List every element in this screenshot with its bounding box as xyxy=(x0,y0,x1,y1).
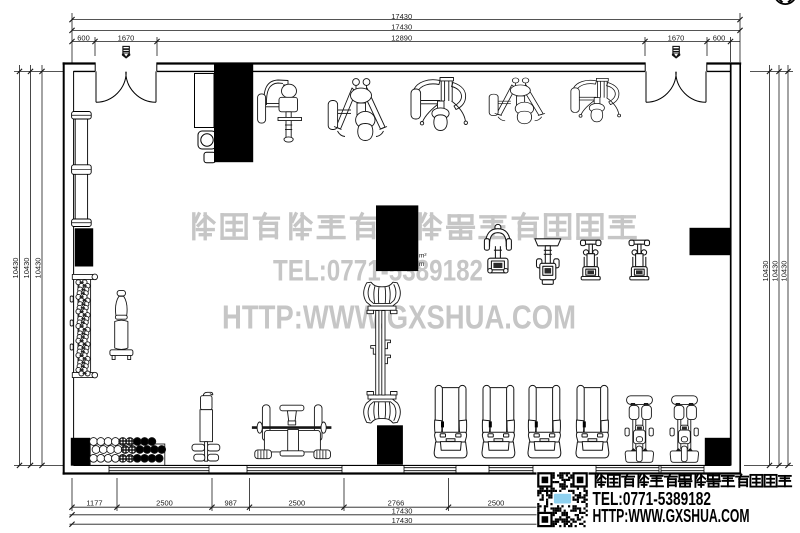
svg-text:10430: 10430 xyxy=(780,261,789,282)
svg-text:600: 600 xyxy=(713,34,726,43)
svg-text:12890: 12890 xyxy=(391,34,412,43)
svg-text:HTTP:WWW.GXSHUA.COM: HTTP:WWW.GXSHUA.COM xyxy=(593,506,750,526)
svg-text:2500: 2500 xyxy=(488,498,505,507)
svg-text:2500: 2500 xyxy=(156,498,173,507)
svg-text:10430: 10430 xyxy=(761,261,770,282)
svg-text:600: 600 xyxy=(77,34,90,43)
svg-text:10430: 10430 xyxy=(771,261,780,282)
svg-text:17430: 17430 xyxy=(392,516,413,525)
svg-text:10430: 10430 xyxy=(11,258,20,279)
svg-text:m²: m² xyxy=(419,253,427,260)
svg-text:1177: 1177 xyxy=(86,498,102,507)
svg-text:10430: 10430 xyxy=(34,258,43,279)
svg-text:1670: 1670 xyxy=(118,34,135,43)
svg-text:m: m xyxy=(419,261,424,268)
svg-text:1670: 1670 xyxy=(668,34,685,43)
svg-text:987: 987 xyxy=(224,498,237,507)
svg-text:2500: 2500 xyxy=(288,498,305,507)
svg-text:17430: 17430 xyxy=(391,12,412,21)
svg-text:17430: 17430 xyxy=(391,23,412,32)
svg-text:17430: 17430 xyxy=(392,507,413,516)
svg-text:10430: 10430 xyxy=(22,258,31,279)
svg-text:HTTP:WWW.GXSHUA.COM: HTTP:WWW.GXSHUA.COM xyxy=(222,299,576,336)
